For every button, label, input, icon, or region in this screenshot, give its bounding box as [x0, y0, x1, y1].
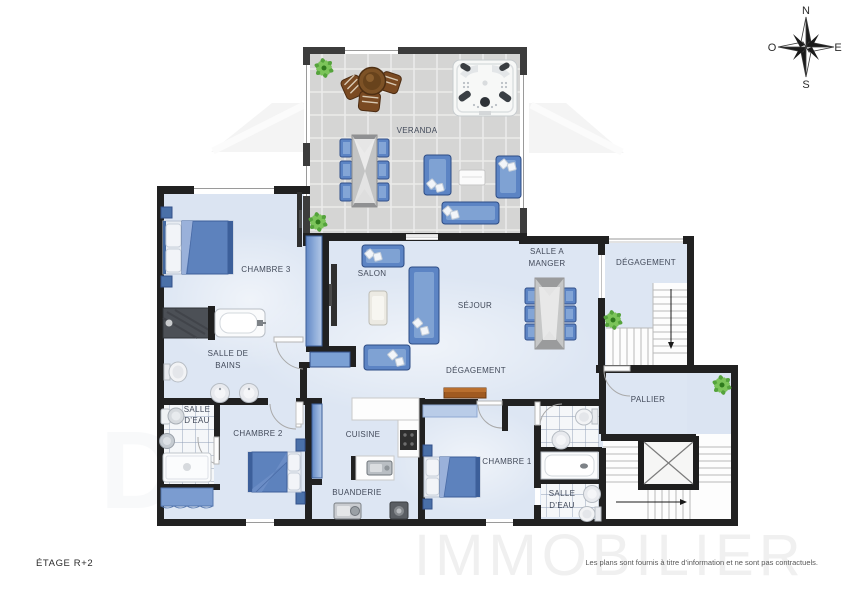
svg-text:S: S: [802, 79, 809, 91]
svg-text:O: O: [768, 42, 777, 54]
svg-text:BUANDERIE: BUANDERIE: [332, 488, 381, 497]
svg-text:CUISINE: CUISINE: [346, 430, 381, 439]
svg-text:SÉJOUR: SÉJOUR: [458, 301, 492, 310]
svg-text:SALLE DE: SALLE DE: [208, 349, 249, 358]
svg-text:PALLIER: PALLIER: [631, 395, 665, 404]
svg-text:CHAMBRE 1: CHAMBRE 1: [482, 457, 532, 466]
svg-text:D’EAU: D’EAU: [549, 501, 575, 510]
svg-text:E: E: [834, 42, 841, 54]
svg-text:SALON: SALON: [358, 269, 387, 278]
svg-text:CHAMBRE 2: CHAMBRE 2: [233, 429, 283, 438]
svg-text:SALLE A: SALLE A: [530, 247, 564, 256]
svg-text:Les plans sont fournis à titre: Les plans sont fournis à titre d’informa…: [585, 558, 818, 567]
svg-text:DÉGAGEMENT: DÉGAGEMENT: [616, 258, 676, 267]
svg-text:N: N: [802, 5, 810, 17]
svg-text:DÉGAGEMENT: DÉGAGEMENT: [446, 366, 506, 375]
svg-text:IMMOBILIER: IMMOBILIER: [414, 523, 806, 588]
svg-text:ÉTAGE R+2: ÉTAGE R+2: [36, 558, 93, 569]
svg-text:SALLE: SALLE: [184, 405, 210, 414]
svg-text:VERANDA: VERANDA: [397, 126, 438, 135]
svg-text:D’EAU: D’EAU: [184, 416, 210, 425]
svg-text:CHAMBRE 3: CHAMBRE 3: [241, 265, 291, 274]
svg-text:SALLE: SALLE: [549, 489, 575, 498]
svg-text:BAINS: BAINS: [215, 361, 241, 370]
svg-text:MANGER: MANGER: [529, 259, 566, 268]
